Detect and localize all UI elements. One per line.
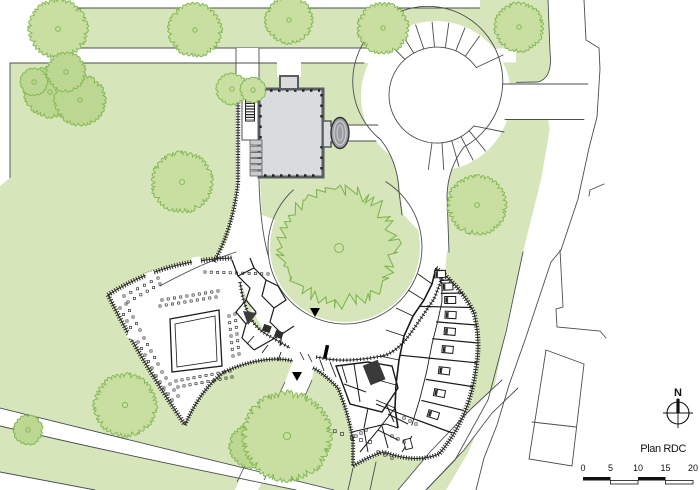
- svg-text:15: 15: [660, 463, 670, 473]
- svg-text:Plan RDC: Plan RDC: [640, 443, 686, 455]
- svg-text:0: 0: [580, 463, 585, 473]
- svg-text:5: 5: [608, 463, 613, 473]
- svg-text:20: 20: [688, 463, 698, 473]
- svg-text:N: N: [674, 387, 682, 399]
- svg-text:10: 10: [633, 463, 643, 473]
